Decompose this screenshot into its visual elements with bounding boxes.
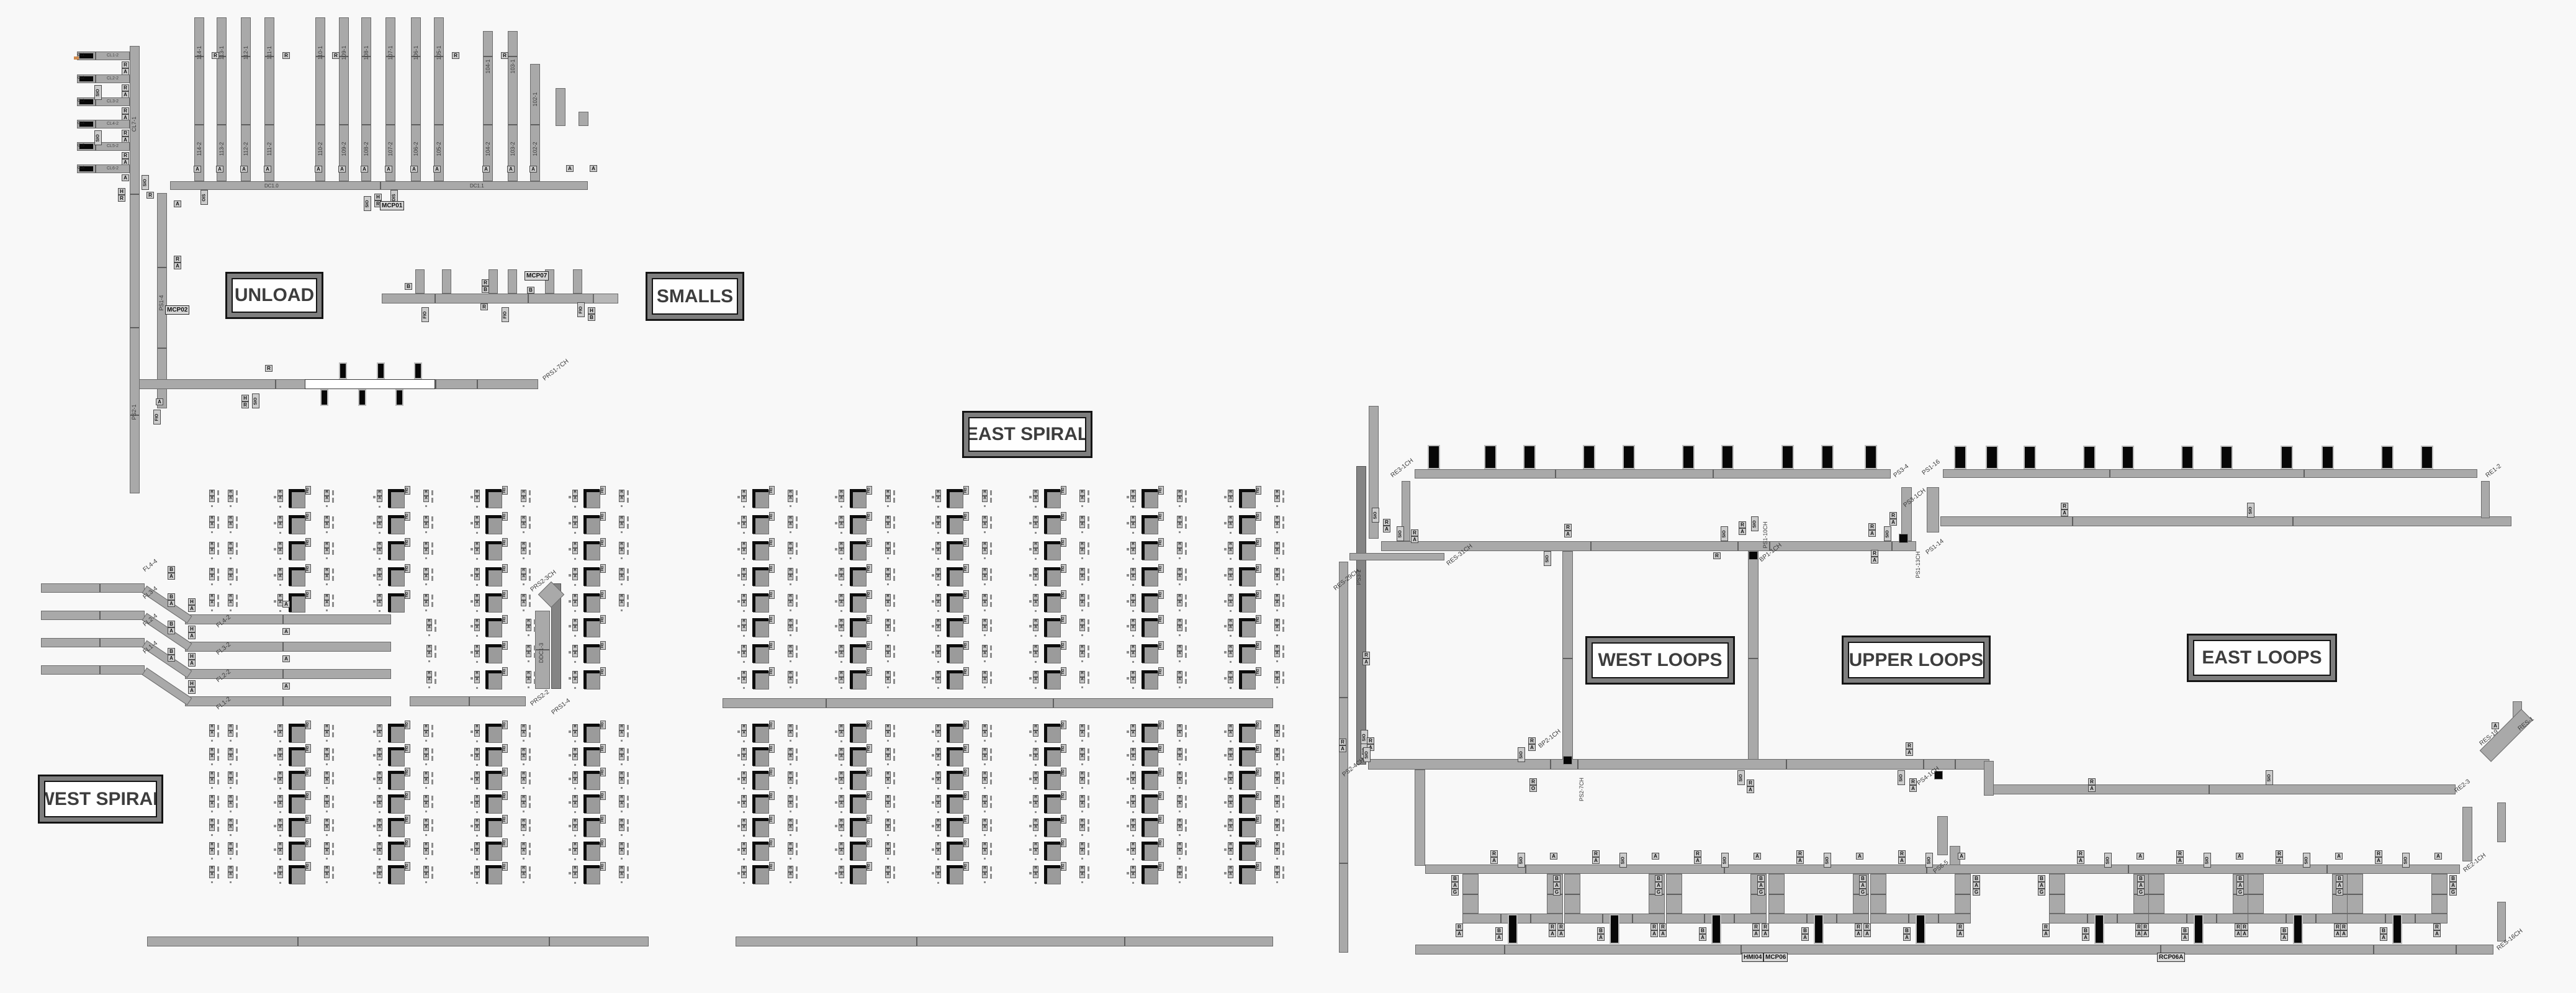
module-io-tag: FIO — [769, 486, 775, 495]
signal-badge: A — [1855, 930, 1862, 937]
yard-satellite-dash — [332, 819, 334, 824]
module-badge: R — [1033, 842, 1038, 848]
module-dot — [835, 848, 837, 851]
module-io-tag: FIO — [502, 538, 508, 547]
module-badge: A — [474, 600, 480, 606]
track-id-diagonal: PS1-16 — [1921, 459, 1942, 477]
yard-satellite-badge: R — [209, 771, 215, 778]
module-dot — [737, 730, 740, 733]
yard-satellite-dash — [790, 660, 791, 662]
yard-satellite-badge: A — [1079, 730, 1085, 737]
yard-satellite-dash — [627, 524, 629, 529]
module-dot — [840, 506, 842, 508]
train-marker — [1428, 445, 1440, 469]
module-io-tag: FIO — [867, 791, 872, 800]
signal-badge: A — [410, 166, 418, 173]
yard-satellite-dash — [523, 740, 525, 742]
module-badge: R — [1130, 771, 1136, 778]
module-io-tag: FIO — [769, 615, 775, 624]
yard-satellite-badge: R — [1274, 819, 1280, 825]
yard-satellite-badge: A — [1274, 677, 1280, 683]
module-badge: R — [1228, 795, 1233, 801]
yard-satellite-badge: A — [885, 548, 891, 554]
yard-satellite-dash — [236, 732, 238, 737]
yard-satellite-badge: R — [619, 748, 624, 754]
signal-badge: R — [174, 256, 181, 263]
yard-satellite-badge: A — [228, 801, 233, 807]
track-id-vertical: 106-2 — [413, 142, 419, 156]
module-io-tag: FIO — [600, 721, 606, 729]
module-io-tag: FIO — [600, 486, 606, 495]
yard-satellite-badge: A — [521, 496, 526, 502]
signal-badge: R — [1694, 850, 1701, 857]
module-badge: R — [572, 748, 578, 754]
track-joint — [1938, 914, 1939, 923]
module-badge: R — [572, 516, 578, 522]
train-marker — [2281, 446, 2293, 469]
yard-satellite-dash — [796, 819, 798, 824]
yard-satellite-dash — [984, 881, 986, 883]
module-badge: A — [377, 801, 382, 807]
yard-satellite-dash — [1088, 568, 1089, 573]
module-badge: R — [839, 724, 844, 730]
yard-satellite-badge: R — [1274, 866, 1280, 872]
module-badge: R — [741, 542, 747, 548]
classification-module — [947, 644, 963, 663]
yard-satellite-dash — [425, 881, 427, 883]
module-badge: R — [474, 819, 480, 825]
yard-satellite-dash — [211, 505, 213, 507]
module-io-tag: FIO — [1061, 862, 1066, 871]
track-joint — [508, 124, 517, 125]
module-io-tag: FIO — [1061, 838, 1066, 847]
module-badge: A — [1033, 801, 1038, 807]
yard-satellite-badge: A — [423, 801, 429, 807]
yard-satellite-dash — [236, 843, 238, 848]
signal-badge: R — [1898, 850, 1906, 857]
yard-satellite-dash — [332, 796, 334, 801]
yard-satellite-badge: R — [885, 866, 891, 872]
module-dot — [737, 574, 740, 577]
track-bar — [41, 665, 145, 675]
track-id-vertical: 109-2 — [341, 142, 347, 156]
module-badge: R — [572, 645, 578, 651]
yard-satellite-badge: A — [982, 778, 988, 784]
module-badge: A — [277, 754, 283, 760]
yard-satellite-dash — [211, 740, 213, 742]
yard-satellite-dash — [534, 627, 536, 632]
signal-badge: R — [122, 84, 129, 91]
yard-satellite-dash — [1179, 634, 1181, 636]
module-dot — [1035, 858, 1037, 860]
yard-satellite-dash — [796, 619, 798, 624]
signal-badge: B — [1655, 875, 1662, 882]
classification-module — [1239, 618, 1255, 637]
yard-satellite-badge: R — [521, 771, 526, 778]
yard-satellite-badge: R — [423, 516, 429, 522]
module-io-tag: FIO — [867, 768, 872, 776]
track-joint — [484, 124, 492, 125]
track-joint — [282, 670, 284, 678]
module-badge: A — [935, 872, 941, 878]
module-dot — [840, 661, 842, 663]
yard-satellite-badge: A — [885, 574, 891, 580]
signal-badge: R — [1564, 524, 1572, 531]
module-badge: R — [839, 748, 844, 754]
yard-satellite-badge: R — [209, 568, 215, 574]
yard-satellite-dash — [1276, 834, 1278, 836]
module-badge: A — [935, 778, 941, 784]
yard-satellite-dash — [236, 819, 238, 824]
module-io-tag: FIO — [963, 538, 969, 547]
classification-module — [1142, 644, 1158, 663]
module-badge: A — [1130, 825, 1136, 831]
module-badge: R — [474, 842, 480, 848]
module-badge: R — [572, 795, 578, 801]
module-dot — [1230, 558, 1232, 560]
section-label-unload: UNLOAD — [225, 272, 323, 319]
classification-module — [1044, 618, 1060, 637]
classification-module — [752, 567, 768, 586]
yard-satellite-dash — [332, 780, 334, 784]
yard-satellite-badge: A — [228, 574, 233, 580]
classification-module — [947, 724, 963, 742]
module-dot — [1132, 788, 1134, 789]
classification-module — [583, 794, 600, 813]
classification-module — [1142, 724, 1158, 742]
module-io-tag: FIO — [600, 862, 606, 871]
yard-satellite-badge: A — [1079, 778, 1085, 784]
yard-satellite-dash — [790, 881, 791, 883]
yard-satellite-dash — [1088, 490, 1089, 495]
module-dot — [937, 835, 939, 837]
yard-satellite-dash — [1282, 602, 1284, 607]
module-dot — [274, 600, 276, 603]
module-dot — [379, 788, 381, 789]
yard-satellite-dash — [431, 490, 433, 495]
yard-satellite-dash — [529, 843, 531, 848]
module-badge: A — [839, 496, 844, 502]
section-label-upper-loops: UPPER LOOPS — [1842, 636, 1991, 685]
module-dot — [1029, 872, 1032, 874]
module-dot — [835, 825, 837, 827]
yard-satellite-dash — [887, 740, 889, 742]
module-dot — [737, 625, 740, 627]
module-dot — [1127, 600, 1129, 603]
yard-satellite-dash — [984, 634, 986, 636]
module-badge: A — [572, 600, 578, 606]
signal-badge: R — [1367, 737, 1374, 744]
yard-satellite-dash — [431, 803, 433, 808]
yard-satellite-dash — [990, 490, 992, 495]
module-dot — [937, 740, 939, 742]
yard-satellite-dash — [893, 645, 895, 650]
module-badge: R — [572, 671, 578, 677]
module-dot — [1029, 522, 1032, 524]
yard-satellite-dash — [332, 827, 334, 832]
yard-satellite-dash — [523, 531, 525, 533]
module-badge: A — [474, 778, 480, 784]
classification-module — [583, 670, 600, 689]
yard-satellite-badge: A — [885, 825, 891, 831]
classification-module — [583, 865, 600, 884]
module-dot — [1230, 687, 1232, 689]
yard-satellite-badge: A — [982, 574, 988, 580]
yard-satellite-dash — [887, 763, 889, 765]
signal-badge: SIO — [2204, 853, 2211, 868]
yard-satellite-dash — [1179, 609, 1181, 611]
signal-badge: R — [2375, 850, 2382, 857]
module-dot — [1029, 825, 1032, 827]
yard-satellite-dash — [332, 732, 334, 737]
signal-badge: B — [2449, 875, 2457, 882]
yard-satellite-badge: A — [521, 848, 526, 855]
track-bar — [315, 17, 325, 181]
train-marker — [339, 362, 347, 379]
signal-badge: A — [156, 398, 163, 405]
module-badge: A — [377, 600, 382, 606]
module-dot — [1127, 872, 1129, 874]
yard-satellite-dash — [790, 763, 791, 765]
yard-satellite-dash — [1282, 874, 1284, 879]
signal-badge: R — [1868, 523, 1876, 530]
classification-module — [485, 489, 502, 508]
yard-satellite-dash — [236, 850, 238, 855]
signal-badge: B — [2336, 875, 2343, 882]
yard-satellite-dash — [425, 557, 427, 559]
yard-satellite-dash — [1088, 550, 1089, 555]
track-bar — [170, 181, 588, 190]
track-joint — [297, 937, 299, 946]
classification-module — [289, 567, 305, 586]
module-badge: A — [277, 872, 283, 878]
module-dot — [1035, 764, 1037, 766]
yard-satellite-dash — [1081, 686, 1083, 688]
yard-satellite-badge: A — [788, 778, 793, 784]
classification-module — [1239, 818, 1255, 837]
yard-satellite-dash — [332, 725, 334, 730]
module-badge: R — [935, 748, 941, 754]
module-io-tag: FIO — [769, 641, 775, 650]
yard-satellite-badge: A — [1274, 778, 1280, 784]
module-io-tag: FIO — [305, 791, 311, 800]
signal-badge: R — [1528, 737, 1536, 744]
module-io-tag: FIO — [1158, 512, 1164, 521]
signal-badge: A — [168, 627, 175, 634]
yard-satellite-dash — [217, 498, 219, 503]
yard-satellite-dash — [627, 780, 629, 784]
module-dot — [1132, 740, 1134, 742]
track-joint — [1667, 894, 1682, 895]
yard-satellite-badge: A — [1079, 825, 1085, 831]
train-marker — [1508, 914, 1518, 944]
signal-badge: G — [2137, 889, 2145, 896]
module-dot — [932, 522, 934, 524]
yard-satellite-dash — [435, 653, 436, 658]
module-badge: R — [741, 771, 747, 778]
module-dot — [1127, 496, 1129, 498]
classification-module — [947, 541, 963, 560]
train-marker — [1821, 445, 1834, 469]
track-joint — [1737, 542, 1739, 550]
yard-satellite-dash — [1088, 803, 1089, 808]
yard-satellite-badge: R — [1177, 819, 1182, 825]
classification-module — [583, 489, 600, 508]
module-badge: A — [839, 574, 844, 580]
yard-satellite-badge: R — [423, 594, 429, 600]
yard-satellite-dash — [332, 874, 334, 879]
module-dot — [932, 677, 934, 680]
module-io-tag: FIO — [1256, 768, 1261, 776]
signal-badge: A — [1699, 934, 1706, 941]
module-badge: R — [741, 594, 747, 600]
module-dot — [1224, 496, 1227, 498]
module-dot — [379, 740, 381, 742]
module-dot — [1035, 835, 1037, 837]
yard-satellite-dash — [230, 583, 232, 585]
yard-satellite-dash — [627, 732, 629, 737]
yard-satellite-dash — [217, 516, 219, 521]
module-dot — [471, 651, 473, 654]
module-dot — [1132, 506, 1134, 508]
module-badge: A — [1228, 825, 1233, 831]
module-dot — [737, 872, 740, 874]
module-dot — [379, 584, 381, 586]
section-label-east-loops: EAST LOOPS — [2187, 634, 2337, 682]
yard-satellite-dash — [887, 881, 889, 883]
yard-satellite-badge: A — [228, 496, 233, 502]
module-badge: R — [741, 490, 747, 496]
track-bar — [530, 64, 540, 181]
module-dot — [373, 825, 376, 827]
yard-satellite-dash — [431, 772, 433, 777]
module-io-tag: FIO — [600, 838, 606, 847]
track-joint — [1530, 914, 1531, 923]
yard-satellite-dash — [796, 843, 798, 848]
cl-row-id: CL5-2 — [107, 144, 119, 148]
signal-badge: B — [1495, 927, 1503, 934]
yard-satellite-badge: R — [1177, 771, 1182, 778]
signal-badge: A — [2137, 853, 2144, 860]
yard-satellite-dash — [217, 819, 219, 824]
module-badge: A — [1033, 754, 1038, 760]
yard-satellite-dash — [990, 819, 992, 824]
yard-satellite-dash — [236, 866, 238, 871]
signal-badge: SIO — [1925, 853, 1933, 868]
module-badge: R — [935, 490, 941, 496]
module-badge: A — [1130, 625, 1136, 631]
yard-satellite-badge: R — [324, 866, 330, 872]
track-joint — [1786, 760, 1787, 769]
yard-satellite-dash — [990, 516, 992, 521]
yard-satellite-dash — [431, 866, 433, 871]
train-marker — [1954, 446, 1966, 469]
track-id-vertical: 103-1 — [510, 59, 516, 73]
signal-badge: A — [2176, 857, 2184, 864]
yard-satellite-dash — [326, 740, 328, 742]
module-dot — [937, 882, 939, 884]
module-dot — [379, 858, 381, 860]
yard-satellite-badge: R — [982, 866, 988, 872]
signal-badge: A — [482, 166, 490, 173]
yard-satellite-dash — [1185, 819, 1187, 824]
classification-module — [289, 593, 305, 612]
module-dot — [932, 625, 934, 627]
yard-satellite-badge: R — [521, 842, 526, 848]
track-bar — [41, 611, 145, 620]
yard-satellite-dash — [990, 827, 992, 832]
signal-badge: H — [188, 680, 196, 687]
track-joint — [2248, 894, 2263, 895]
yard-satellite-dash — [893, 679, 895, 684]
track-joint — [195, 124, 204, 125]
yard-satellite-badge: A — [1079, 848, 1085, 855]
module-badge: A — [1130, 522, 1136, 528]
yard-satellite-dash — [790, 634, 791, 636]
module-io-tag: FIO — [600, 815, 606, 824]
yard-satellite-dash — [425, 858, 427, 860]
yard-satellite-dash — [211, 609, 213, 611]
yard-satellite-dash — [1081, 557, 1083, 559]
yard-satellite-badge: R — [209, 516, 215, 522]
module-io-tag: FIO — [963, 486, 969, 495]
signal-badge: A — [282, 628, 290, 635]
yard-satellite-badge: A — [521, 754, 526, 760]
module-dot — [574, 610, 576, 612]
signal-badge: H — [374, 194, 382, 200]
module-dot — [835, 522, 837, 524]
module-dot — [840, 858, 842, 860]
yard-satellite-badge: A — [982, 754, 988, 760]
module-dot — [835, 754, 837, 757]
yard-satellite-dash — [1088, 772, 1089, 777]
signal-badge: A — [194, 166, 201, 173]
yard-satellite-dash — [529, 542, 531, 547]
module-io-tag: FIO — [405, 486, 410, 495]
classification-module — [850, 865, 866, 884]
module-io-tag: FIO — [963, 838, 969, 847]
module-badge: R — [377, 795, 382, 801]
yard-satellite-dash — [326, 609, 328, 611]
module-badge: R — [277, 724, 283, 730]
yard-satellite-badge: R — [423, 490, 429, 496]
yard-satellite-badge: R — [521, 490, 526, 496]
signal-badge: A — [1456, 930, 1463, 937]
signal-badge: SIO — [1518, 747, 1525, 762]
classification-module — [752, 670, 768, 689]
signal-badge: H — [588, 307, 595, 314]
yard-satellite-dash — [1185, 490, 1187, 495]
yard-satellite-dash — [887, 609, 889, 611]
classification-module — [850, 818, 866, 837]
module-io-tag: FIO — [405, 590, 410, 599]
module-dot — [569, 600, 571, 603]
signal-badge: A — [1747, 786, 1754, 793]
module-badge: A — [277, 778, 283, 784]
module-io-tag: FIO — [963, 667, 969, 676]
signal-badge: A — [1903, 934, 1911, 941]
yard-satellite-badge: A — [1079, 677, 1085, 683]
yard-satellite-dash — [893, 524, 895, 529]
yard-satellite-dash — [1185, 595, 1187, 600]
yard-satellite-dash — [1282, 772, 1284, 777]
selected-track-segment — [305, 379, 435, 389]
module-badge: A — [935, 548, 941, 554]
equipment-box: MCP01 — [380, 201, 404, 210]
yard-satellite-badge: R — [885, 516, 891, 522]
yard-satellite-dash — [1179, 787, 1181, 789]
module-dot — [835, 778, 837, 780]
